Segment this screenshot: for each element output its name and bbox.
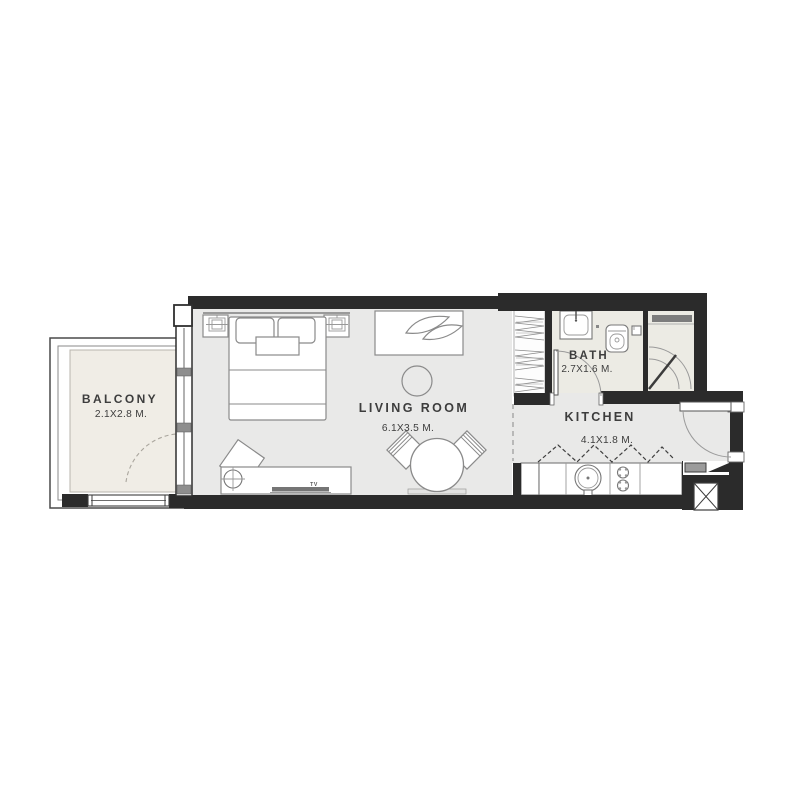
kitchen-counter	[539, 463, 682, 495]
sink-icon	[560, 311, 592, 339]
wall-shower-right	[694, 293, 707, 393]
toilet-icon	[606, 325, 628, 352]
balcony-deck	[70, 350, 176, 492]
bath-dimensions: 2.7X1.6 M.	[561, 364, 612, 375]
wall-bath-shower	[643, 309, 648, 394]
wardrobe	[514, 309, 545, 396]
wall-bath-bottom-left	[514, 393, 553, 405]
shaft	[694, 483, 718, 510]
kitchen-label: KITCHEN	[565, 410, 636, 424]
balcony-railing	[88, 495, 169, 506]
sideboard-with-plant	[375, 311, 463, 355]
entry-doormat	[685, 463, 706, 472]
bath-accessory	[596, 325, 599, 328]
wall-top-left	[188, 296, 498, 309]
balcony-room	[50, 338, 184, 508]
kitchen-dimensions: 4.1X1.8 M.	[581, 435, 633, 446]
bath-label: BATH	[569, 350, 609, 362]
floor-plan: TV	[0, 0, 800, 800]
wall-bottom	[184, 495, 743, 509]
nightstand-left	[203, 315, 228, 337]
kitchen-counter-segment	[521, 463, 539, 495]
window-wall	[174, 305, 192, 496]
bath-door-gap-floor	[553, 393, 601, 405]
blanket-fold	[256, 337, 299, 355]
wall-wardrobe-bath	[545, 309, 552, 394]
wall-column	[174, 305, 192, 326]
floor-plan-drawing: TV	[0, 0, 800, 800]
tv-label: TV	[310, 482, 318, 488]
bath-door-leaf	[554, 350, 558, 395]
living-room-label: LIVING ROOM	[359, 401, 469, 415]
wall-top-right	[498, 293, 707, 311]
balcony-label: BALCONY	[82, 392, 158, 406]
toilet-roll-icon	[632, 326, 641, 335]
window-mullion	[177, 485, 191, 494]
wall-counter-stub	[513, 463, 521, 496]
tv-icon	[272, 487, 329, 492]
entry-door-leaf	[680, 402, 731, 411]
living-room-dimensions: 6.1X3.5 M.	[382, 423, 434, 434]
window-mullion	[177, 368, 191, 376]
dining-table	[411, 439, 464, 492]
bed	[229, 317, 326, 420]
nightstand-right	[324, 315, 349, 337]
shower-head-bar	[652, 315, 692, 322]
window-mullion	[177, 423, 191, 432]
bath-door-jamb	[550, 393, 554, 405]
balcony-dimensions: 2.1X2.8 M.	[95, 409, 147, 420]
wall-balcony-stub-left	[62, 494, 88, 507]
kitchen-fittings	[521, 463, 682, 497]
